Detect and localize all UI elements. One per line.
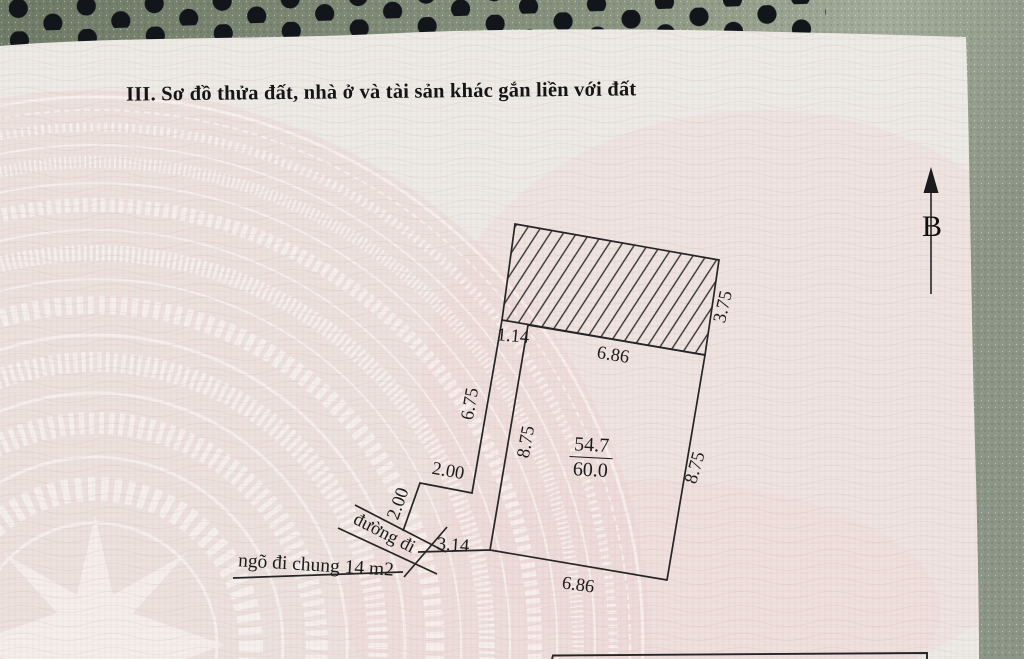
dim-alley-entrance: 3.14 — [436, 534, 470, 557]
area-fraction: 54.7 60.0 — [568, 433, 613, 483]
area-denominator: 60.0 — [568, 457, 612, 483]
photo-of-land-certificate: III. Sơ đồ thửa đất, nhà ở và tài sản kh… — [0, 0, 1024, 659]
north-label: B — [922, 210, 942, 244]
area-numerator: 54.7 — [570, 433, 614, 460]
dim-plot-bottom-width: 6.86 — [561, 573, 596, 598]
dim-hatch-offset-left: 1.14 — [496, 325, 530, 349]
